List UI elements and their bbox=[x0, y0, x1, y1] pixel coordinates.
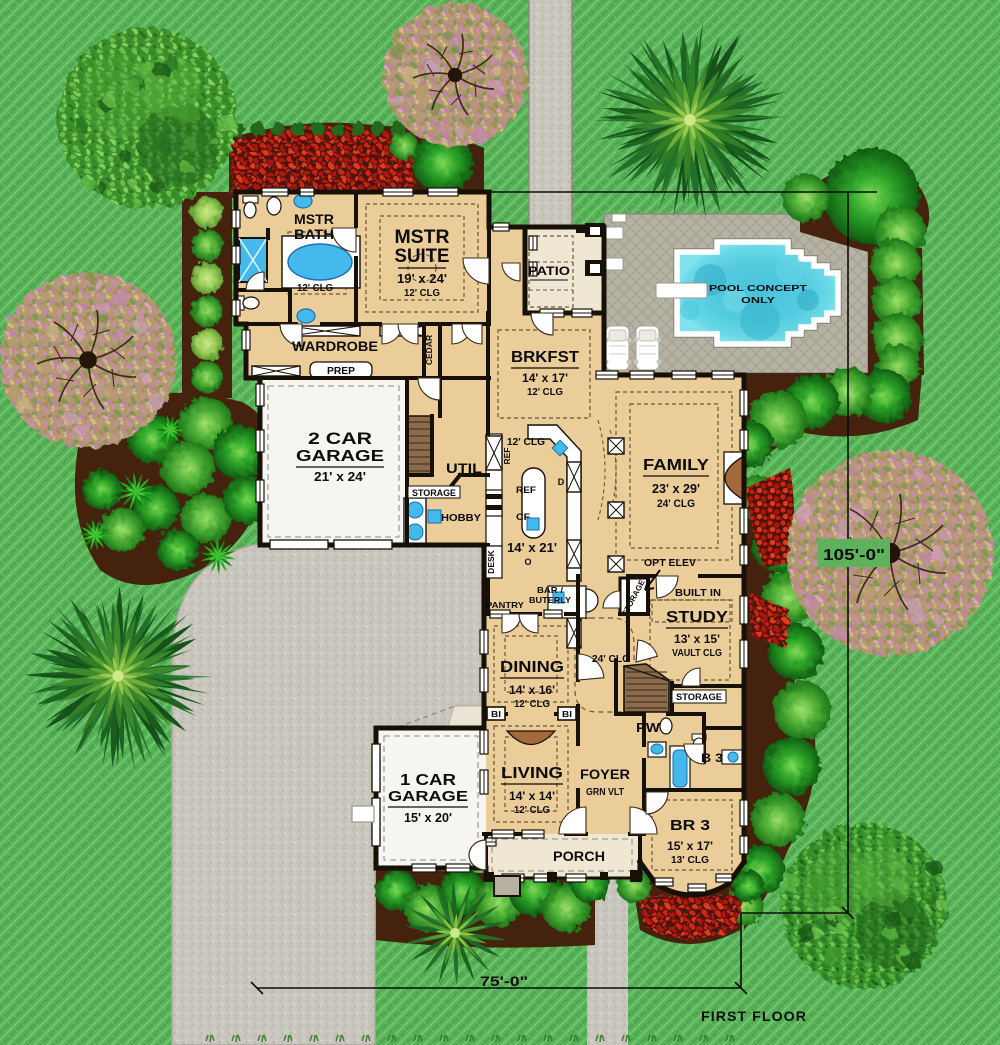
svg-text:12' CLG: 12' CLG bbox=[527, 386, 563, 398]
svg-text:BRKFST: BRKFST bbox=[511, 349, 579, 366]
svg-text:PW: PW bbox=[636, 720, 661, 735]
svg-text:SUITE: SUITE bbox=[395, 246, 450, 267]
svg-text:19' x 24': 19' x 24' bbox=[397, 271, 447, 286]
svg-text:BAR /: BAR / bbox=[537, 585, 564, 595]
svg-text:13' CLG: 13' CLG bbox=[671, 854, 709, 866]
svg-text:75'-0": 75'-0" bbox=[480, 973, 528, 989]
svg-text:2 CAR: 2 CAR bbox=[308, 429, 372, 448]
svg-text:12' CLG: 12' CLG bbox=[404, 287, 440, 299]
svg-text:STUDY: STUDY bbox=[666, 609, 729, 626]
svg-text:PANTRY: PANTRY bbox=[486, 600, 524, 610]
svg-text:DINING: DINING bbox=[500, 659, 564, 676]
svg-text:GRN VLT: GRN VLT bbox=[586, 787, 624, 798]
svg-text:D: D bbox=[558, 477, 565, 487]
svg-text:B 3: B 3 bbox=[701, 751, 723, 765]
svg-text:PREP: PREP bbox=[327, 366, 355, 377]
svg-text:FOYER: FOYER bbox=[580, 767, 630, 782]
svg-text:HOBBY: HOBBY bbox=[441, 512, 481, 524]
svg-text:WARDROBE: WARDROBE bbox=[292, 338, 378, 354]
svg-text:PATIO: PATIO bbox=[528, 264, 570, 278]
svg-text:VAULT CLG: VAULT CLG bbox=[672, 647, 722, 659]
svg-text:21' x 24': 21' x 24' bbox=[314, 469, 366, 484]
svg-text:LIVING: LIVING bbox=[501, 765, 563, 782]
svg-text:FIRST FLOOR: FIRST FLOOR bbox=[701, 1009, 807, 1024]
svg-text:BI: BI bbox=[562, 710, 572, 719]
svg-text:REF: REF bbox=[502, 448, 512, 465]
svg-text:BUTERLY: BUTERLY bbox=[529, 595, 571, 605]
svg-text:OPT ELEV: OPT ELEV bbox=[644, 558, 696, 569]
svg-text:14' x 16': 14' x 16' bbox=[509, 683, 555, 697]
svg-text:14' x 21': 14' x 21' bbox=[507, 540, 557, 555]
svg-text:STORAGE: STORAGE bbox=[412, 488, 456, 498]
svg-text:FAMILY: FAMILY bbox=[643, 457, 709, 474]
svg-text:12' CLG: 12' CLG bbox=[514, 698, 550, 710]
svg-text:CEDAR: CEDAR bbox=[424, 335, 434, 365]
svg-text:POOL CONCEPT: POOL CONCEPT bbox=[709, 284, 807, 293]
svg-text:15' x 20': 15' x 20' bbox=[404, 811, 452, 825]
svg-text:12' CLG: 12' CLG bbox=[297, 282, 333, 294]
svg-text:PORCH: PORCH bbox=[553, 849, 605, 864]
svg-text:BUILT IN: BUILT IN bbox=[675, 587, 721, 599]
svg-text:14' x 14': 14' x 14' bbox=[509, 789, 555, 803]
svg-text:24' CLG: 24' CLG bbox=[592, 653, 630, 665]
svg-text:12' CLG: 12' CLG bbox=[514, 804, 550, 816]
svg-text:MSTR: MSTR bbox=[294, 211, 334, 227]
svg-text:ONLY: ONLY bbox=[741, 296, 776, 305]
svg-text:UTIL: UTIL bbox=[446, 460, 483, 476]
svg-text:12' CLG: 12' CLG bbox=[507, 436, 545, 448]
svg-text:GARAGE: GARAGE bbox=[296, 448, 384, 465]
svg-text:1 CAR: 1 CAR bbox=[400, 772, 456, 789]
svg-text:BI: BI bbox=[491, 710, 501, 719]
svg-text:105'-0": 105'-0" bbox=[823, 547, 885, 564]
svg-text:15' x 17': 15' x 17' bbox=[667, 839, 713, 853]
svg-text:REF: REF bbox=[516, 485, 537, 495]
svg-text:DESK: DESK bbox=[486, 549, 496, 573]
svg-text:BATH: BATH bbox=[294, 226, 334, 242]
svg-text:13' x 15': 13' x 15' bbox=[674, 632, 720, 646]
svg-text:STORAGE: STORAGE bbox=[676, 692, 722, 703]
svg-text:23' x 29': 23' x 29' bbox=[652, 481, 700, 496]
svg-text:24' CLG: 24' CLG bbox=[657, 498, 695, 510]
svg-text:14' x 17': 14' x 17' bbox=[522, 371, 568, 385]
svg-text:GARAGE: GARAGE bbox=[388, 788, 468, 805]
svg-text:MSTR: MSTR bbox=[395, 227, 450, 248]
svg-text:CF: CF bbox=[516, 512, 531, 522]
svg-text:BR 3: BR 3 bbox=[670, 817, 710, 834]
svg-text:O: O bbox=[524, 557, 531, 567]
